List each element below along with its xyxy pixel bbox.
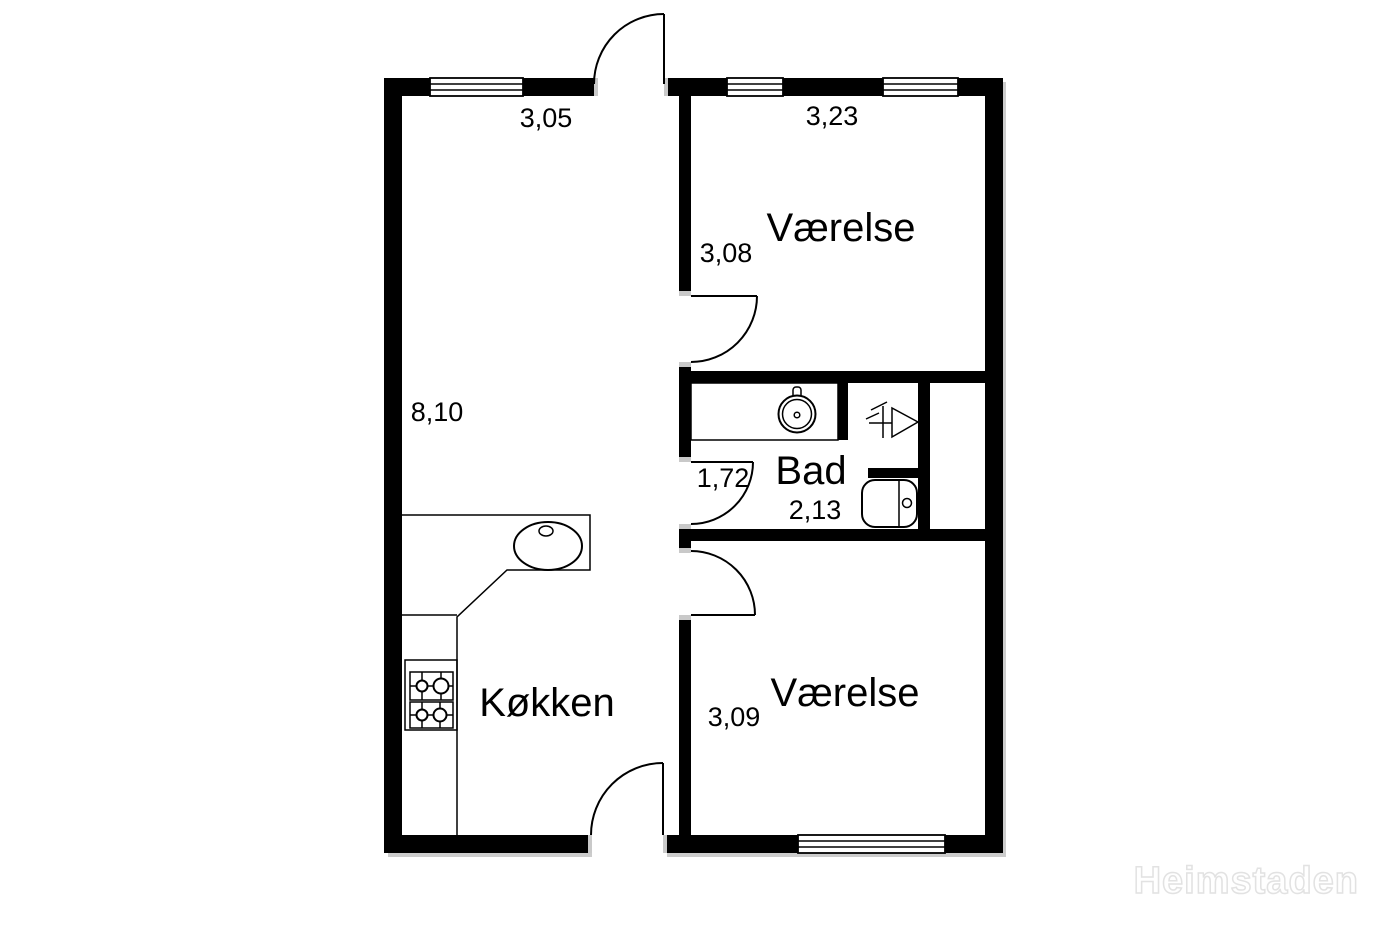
toilet-icon bbox=[862, 480, 917, 527]
dim-bath-depth: 2,13 bbox=[789, 495, 842, 525]
bath-label: Bad bbox=[775, 449, 846, 493]
dim-living-length: 8,10 bbox=[411, 397, 464, 427]
room-top-label: Værelse bbox=[767, 206, 916, 250]
dim-room-top-width: 3,23 bbox=[806, 101, 859, 131]
shadow-right bbox=[1003, 82, 1006, 855]
window-room-top-1 bbox=[727, 78, 783, 96]
kitchen-door bbox=[591, 763, 663, 835]
kitchen-sink-icon bbox=[514, 522, 582, 570]
bath-sink-icon bbox=[779, 387, 816, 433]
stove-icon bbox=[405, 660, 457, 730]
room-top-door bbox=[691, 296, 757, 362]
dim-room-top-depth: 3,08 bbox=[700, 238, 753, 268]
wall-toilet-stub bbox=[868, 468, 930, 478]
floorplan-drawing: 3,05 3,23 3,08 Værelse 8,10 1,72 Bad 2,1… bbox=[0, 0, 1387, 925]
wall-bottom-2 bbox=[667, 835, 798, 853]
wall-top-4 bbox=[783, 78, 883, 96]
window-room-top-2 bbox=[883, 78, 958, 96]
wall-bottom-1 bbox=[384, 835, 588, 853]
door-jambs bbox=[588, 78, 691, 853]
shower-icon bbox=[866, 402, 918, 438]
wall-right bbox=[985, 78, 1003, 853]
dim-room-bottom-depth: 3,09 bbox=[708, 702, 761, 732]
wall-top-3 bbox=[668, 78, 727, 96]
wall-top-2 bbox=[523, 78, 594, 96]
shadow-bottom-left bbox=[388, 853, 592, 857]
entrance-door bbox=[594, 14, 664, 84]
wall-divider-a bbox=[679, 96, 691, 296]
window-room-bottom bbox=[798, 835, 945, 853]
dim-living-width: 3,05 bbox=[520, 103, 573, 133]
wall-bath-bottom bbox=[679, 529, 985, 541]
wall-divider-d bbox=[679, 615, 691, 835]
floorplan-canvas: 3,05 3,23 3,08 Værelse 8,10 1,72 Bad 2,1… bbox=[0, 0, 1387, 925]
window-living bbox=[430, 78, 523, 96]
outer-walls bbox=[384, 78, 1003, 853]
wall-sink-stub bbox=[838, 383, 848, 440]
wall-bottom-3 bbox=[945, 835, 1003, 853]
wall-bath-top bbox=[679, 371, 985, 383]
wall-closet bbox=[918, 383, 930, 529]
room-bottom-door bbox=[691, 551, 755, 615]
windows bbox=[430, 78, 958, 853]
wall-left bbox=[384, 78, 402, 853]
dim-bath-width: 1,72 bbox=[697, 463, 750, 493]
room-bottom-label: Værelse bbox=[771, 671, 920, 715]
heimstaden-watermark: Heimstaden bbox=[1134, 860, 1359, 903]
kitchen-fixtures bbox=[402, 515, 590, 835]
kitchen-label: Køkken bbox=[479, 681, 615, 725]
